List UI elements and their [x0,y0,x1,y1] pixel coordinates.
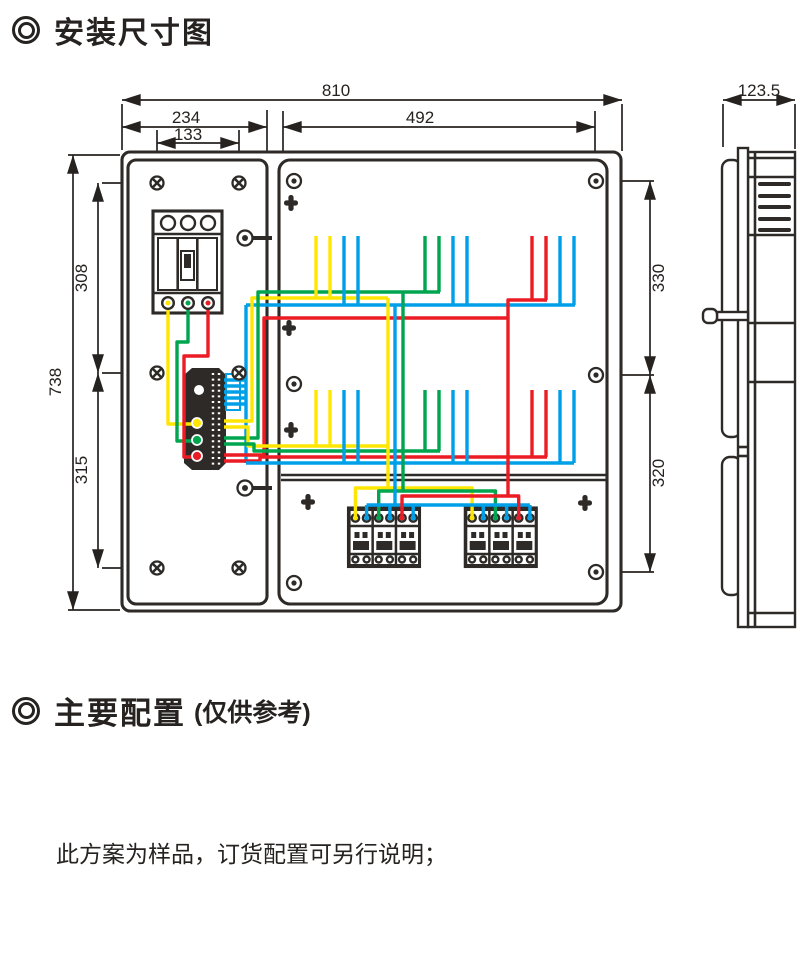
dim-right-top-height: 330 [649,264,668,292]
config-lines: 此方案为样品，订货配置可另行说明； 总开关可装NM1–225S/4300； 表前… [56,747,792,956]
dim-overall-height: 738 [46,368,65,396]
dim-overall-width: 810 [322,81,350,100]
config-heading-text: 主要配置 [54,688,186,733]
config-heading: 主要配置 (仅供参考) [12,688,792,733]
dim-mount-bottom-height: 315 [72,456,91,484]
screw-icon [287,174,301,188]
bullseye-icon [12,697,40,725]
screw-icon [233,177,246,190]
right-door [279,160,607,604]
side-door-edge [738,148,748,627]
breaker-group-left [349,508,420,567]
screw-icon [589,368,603,382]
config-line: 此方案为样品，订货配置可另行说明； [56,833,792,876]
installation-drawing: 810 234 133 492 738 308 315 [0,0,800,670]
screw-icon [287,576,301,590]
side-view [703,148,795,627]
side-lock-pin [703,309,748,323]
config-section: 主要配置 (仅供参考) 此方案为样品，订货配置可另行说明； 总开关可装NM1–2… [12,688,792,956]
config-heading-note: (仅供参考) [194,693,311,729]
dim-depth: 123.5 [738,81,781,100]
screw-icon [233,562,246,575]
page: 安装尺寸图 [0,0,800,956]
screw-icon [287,377,301,391]
screw-icon [151,177,164,190]
screw-icon [151,367,164,380]
screw-icon [589,174,603,188]
dim-mount-width: 133 [174,125,202,144]
screw-icon [151,562,164,575]
dim-right-door-width: 492 [406,108,434,127]
dim-mount-top-height: 308 [72,264,91,292]
dim-right-bottom-height: 320 [649,459,668,487]
breaker-group-right [465,508,536,567]
screw-icon [589,565,603,579]
screw-icon [233,367,246,380]
